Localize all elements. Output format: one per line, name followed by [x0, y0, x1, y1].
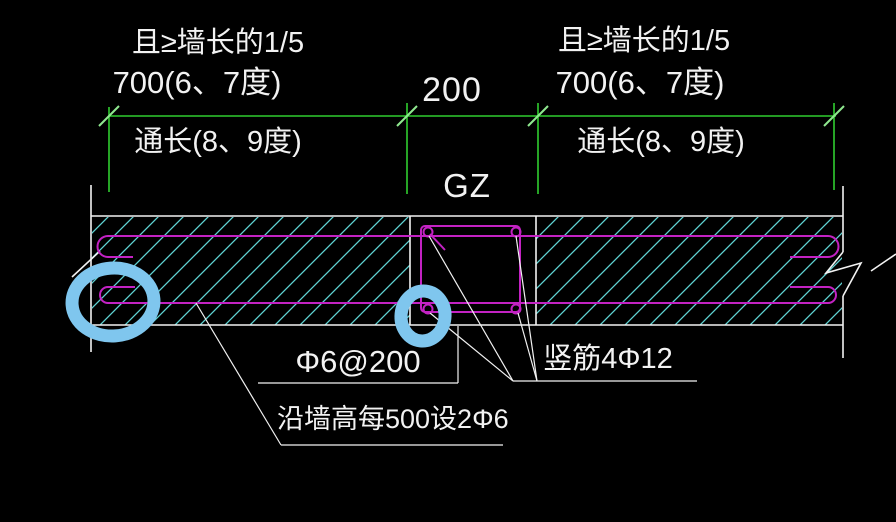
highlight-circle-column-bar — [399, 289, 448, 343]
right-break-tail — [871, 254, 896, 271]
wall-hatching — [92, 217, 842, 325]
tie-bar-label: 沿墙高每500设2Φ6 — [277, 405, 503, 433]
dim-right-note-line2: 700(6、7度) — [550, 67, 730, 100]
dim-right-note-line1: 且≥墙长的1/5 — [554, 26, 734, 56]
column-label: GZ — [440, 169, 494, 204]
dim-left-note-line1: 且≥墙长的1/5 — [128, 28, 308, 58]
cad-drawing-canvas: 且≥墙长的1/5 700(6、7度) 通长(8、9度) 200 且≥墙长的1/5… — [0, 0, 896, 522]
vertical-rebar-label: 竖筋4Φ12 — [528, 344, 688, 374]
dim-left-note-below: 通长(8、9度) — [128, 127, 308, 157]
dim-left-note-line2: 700(6、7度) — [107, 67, 287, 100]
stirrup-spacing-label: Φ6@200 — [268, 346, 448, 379]
dim-right-note-below: 通长(8、9度) — [571, 127, 751, 157]
dim-middle-value: 200 — [412, 73, 492, 109]
hatch-right-region — [536, 217, 842, 325]
